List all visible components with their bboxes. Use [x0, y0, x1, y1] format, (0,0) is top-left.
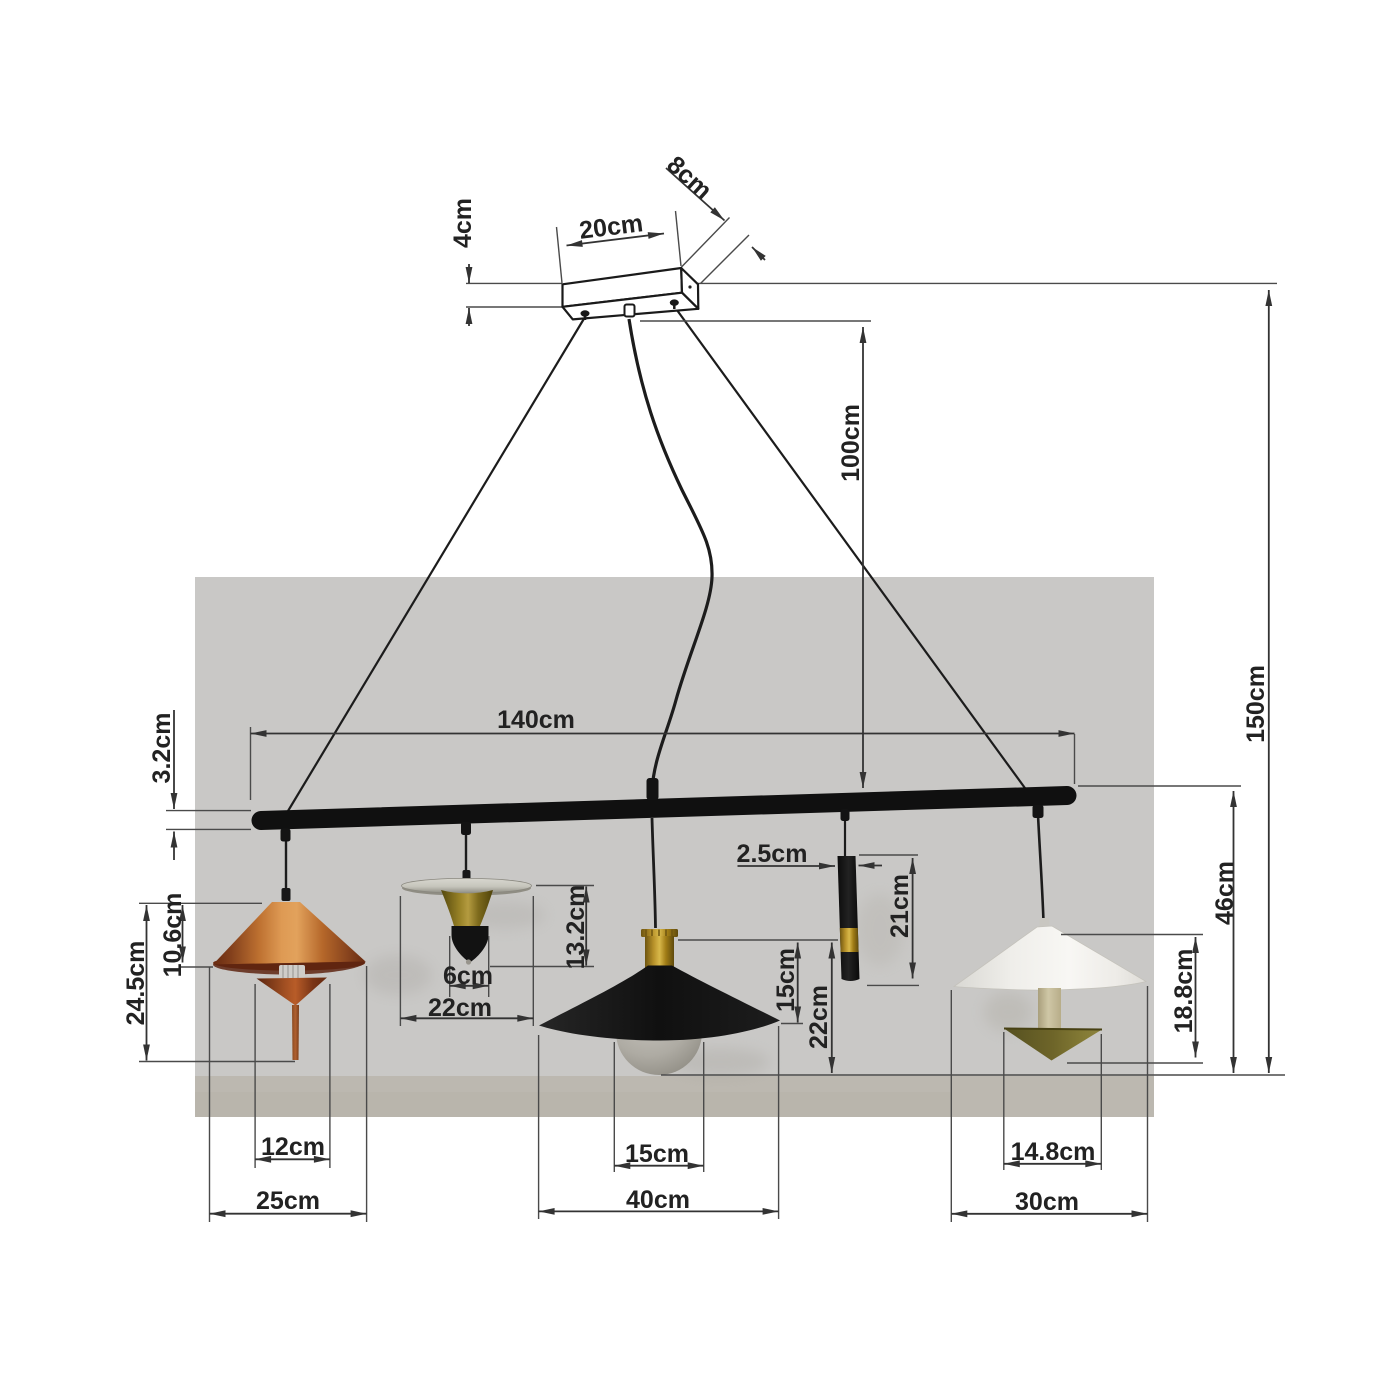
- svg-text:2.5cm: 2.5cm: [737, 840, 808, 868]
- svg-text:25cm: 25cm: [256, 1187, 320, 1215]
- svg-text:14.8cm: 14.8cm: [1011, 1138, 1096, 1166]
- svg-text:13.2cm: 13.2cm: [562, 885, 590, 970]
- svg-text:140cm: 140cm: [497, 706, 575, 734]
- svg-text:21cm: 21cm: [886, 874, 914, 938]
- svg-text:24.5cm: 24.5cm: [122, 941, 150, 1026]
- svg-text:4cm: 4cm: [449, 198, 477, 248]
- svg-text:6cm: 6cm: [443, 962, 493, 990]
- svg-text:100cm: 100cm: [837, 404, 865, 482]
- svg-text:18.8cm: 18.8cm: [1170, 949, 1198, 1034]
- svg-text:40cm: 40cm: [626, 1186, 690, 1214]
- svg-text:15cm: 15cm: [772, 948, 800, 1012]
- svg-text:15cm: 15cm: [625, 1140, 689, 1168]
- svg-text:3.2cm: 3.2cm: [148, 713, 176, 784]
- svg-text:22cm: 22cm: [805, 985, 833, 1049]
- svg-text:10.6cm: 10.6cm: [159, 893, 187, 978]
- svg-text:22cm: 22cm: [428, 994, 492, 1022]
- svg-text:46cm: 46cm: [1211, 861, 1239, 925]
- svg-text:150cm: 150cm: [1242, 665, 1270, 743]
- svg-text:12cm: 12cm: [261, 1133, 325, 1161]
- svg-text:30cm: 30cm: [1015, 1188, 1079, 1216]
